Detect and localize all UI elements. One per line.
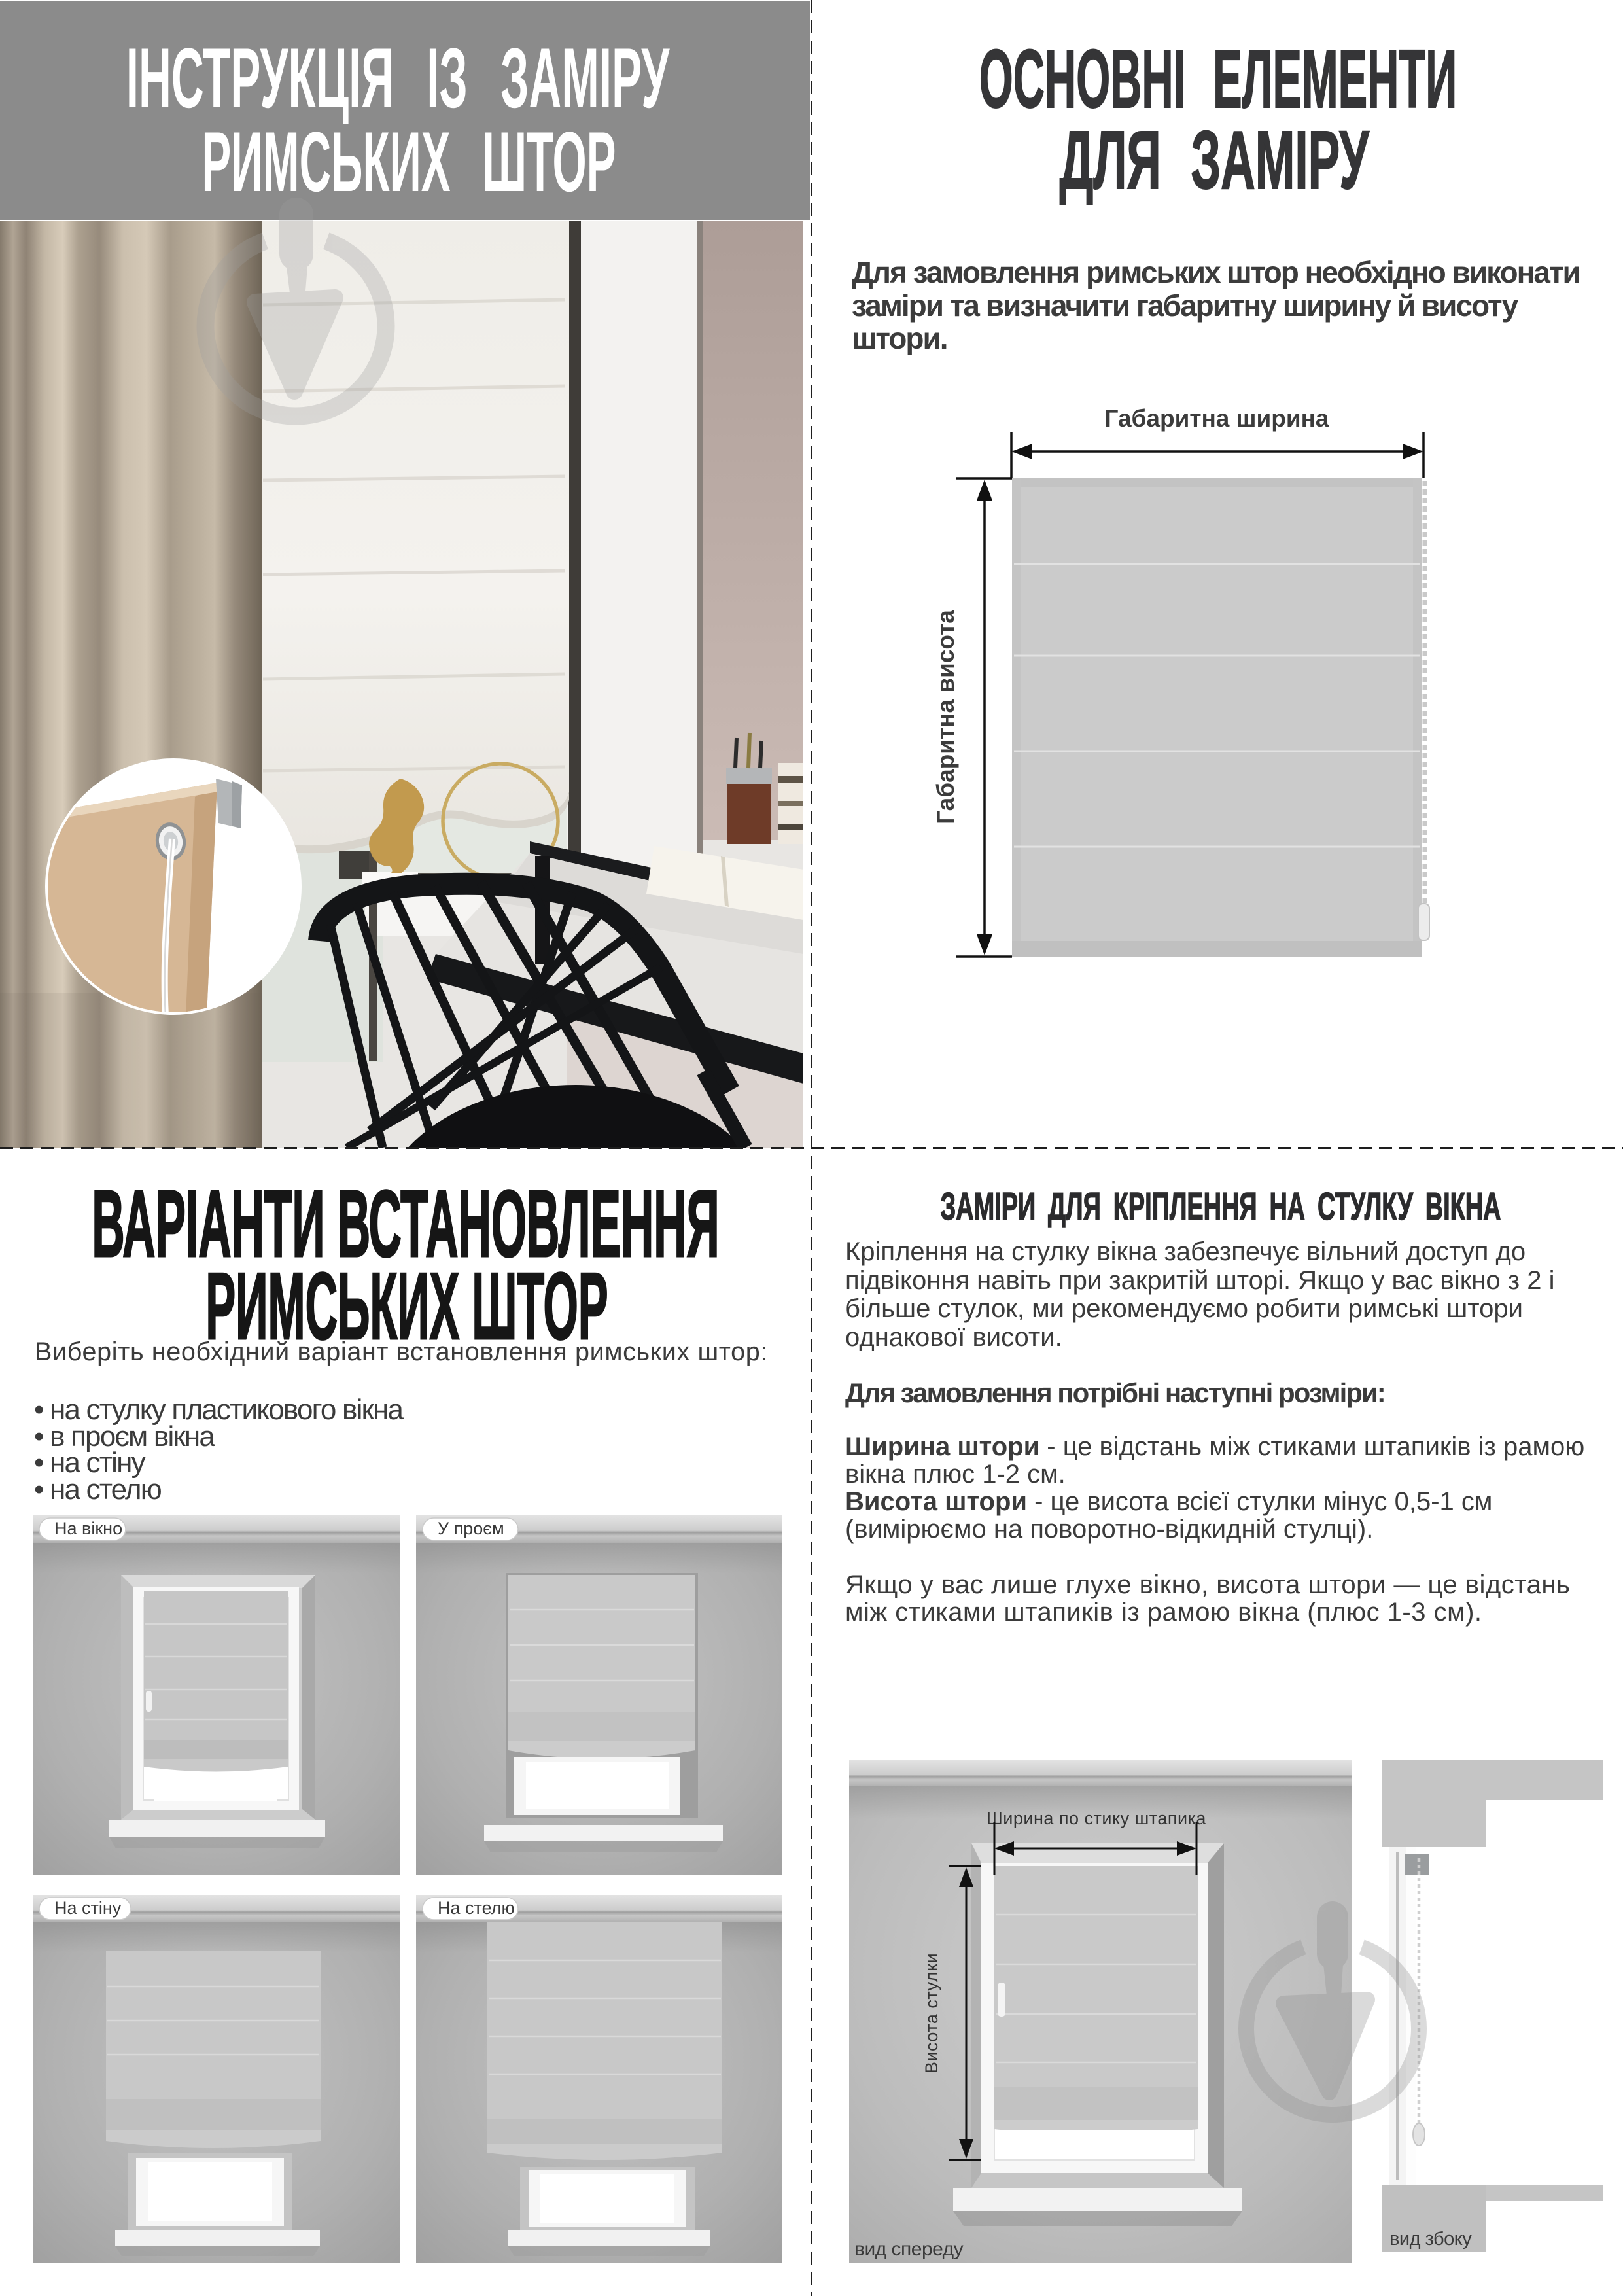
svg-text:Габаритна ширина: Габаритна ширина bbox=[1104, 405, 1329, 432]
svg-text:На вікно: На вікно bbox=[54, 1519, 122, 1538]
svg-text:вид спереду: вид спереду bbox=[854, 2238, 964, 2260]
svg-text:У проєм: У проєм bbox=[438, 1519, 504, 1538]
svg-text:Висота стулки: Висота стулки bbox=[922, 1953, 941, 2074]
svg-text:На стіну: На стіну bbox=[54, 1898, 122, 1918]
svg-text:вид збоку: вид збоку bbox=[1389, 2229, 1472, 2250]
svg-text:Габаритна висота: Габаритна висота bbox=[932, 610, 959, 824]
svg-text:Ширина по стику штапика: Ширина по стику штапика bbox=[986, 1809, 1206, 1828]
svg-text:На стелю: На стелю bbox=[438, 1898, 515, 1918]
